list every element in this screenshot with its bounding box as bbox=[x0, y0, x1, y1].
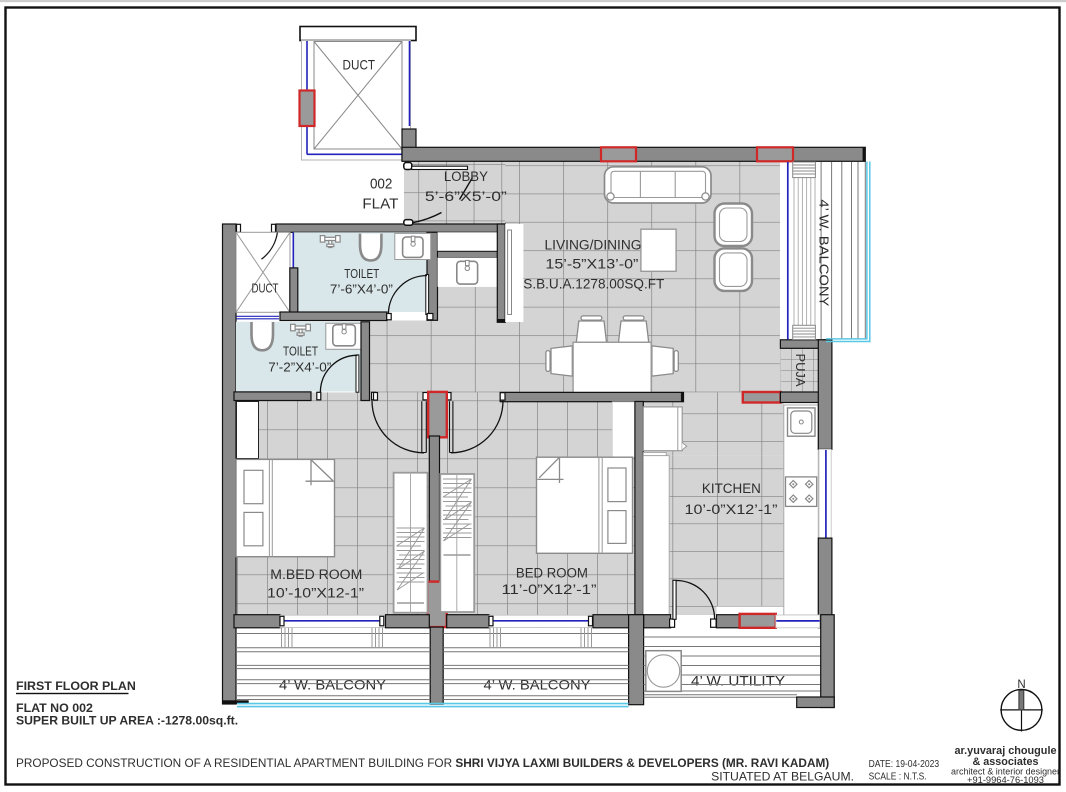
svg-text:7’-2”X4’-0”: 7’-2”X4’-0” bbox=[268, 360, 331, 375]
svg-text:FIRST FLOOR PLAN: FIRST FLOOR PLAN bbox=[16, 679, 136, 693]
svg-text:FLAT: FLAT bbox=[362, 196, 398, 213]
svg-text:SUPER BUILT UP AREA :-1278.00s: SUPER BUILT UP AREA :-1278.00sq.ft. bbox=[16, 714, 238, 728]
svg-text:4’ W. BALCONY: 4’ W. BALCONY bbox=[279, 677, 387, 693]
svg-text:TOILET: TOILET bbox=[344, 266, 379, 281]
svg-text:4’ W. BALCONY: 4’ W. BALCONY bbox=[484, 677, 592, 693]
svg-text:7’-6”X4’-0”: 7’-6”X4’-0” bbox=[330, 282, 393, 297]
svg-text:002: 002 bbox=[370, 176, 393, 193]
svg-text:KITCHEN: KITCHEN bbox=[702, 481, 761, 496]
svg-text:5’-6”X5’-0”: 5’-6”X5’-0” bbox=[425, 189, 507, 204]
svg-text:SCALE : N.T.S.: SCALE : N.T.S. bbox=[869, 772, 927, 783]
svg-text:TOILET: TOILET bbox=[283, 344, 318, 359]
svg-text:10’-0”X12’-1”: 10’-0”X12’-1” bbox=[685, 502, 778, 517]
svg-text:PROPOSED CONSTRUCTION OF A RE: PROPOSED CONSTRUCTION OF A RESIDENTIAL A… bbox=[16, 756, 829, 770]
svg-text:DUCT: DUCT bbox=[252, 282, 279, 296]
svg-text:S.B.U.A.1278.00SQ.FT: S.B.U.A.1278.00SQ.FT bbox=[523, 276, 664, 291]
svg-text:10’-10”X12-1”: 10’-10”X12-1” bbox=[267, 586, 364, 601]
svg-text:M.BED ROOM: M.BED ROOM bbox=[270, 567, 362, 582]
svg-text:LOBBY: LOBBY bbox=[444, 169, 488, 184]
svg-text:BED ROOM: BED ROOM bbox=[516, 565, 588, 580]
svg-text:PUJA: PUJA bbox=[793, 354, 808, 387]
svg-text:N: N bbox=[1017, 679, 1025, 691]
svg-text:LIVING/DINING: LIVING/DINING bbox=[545, 237, 642, 252]
svg-text:SITUATED AT BELGAUM.: SITUATED AT BELGAUM. bbox=[711, 770, 854, 784]
svg-text:DATE: 19-04-2023: DATE: 19-04-2023 bbox=[869, 759, 940, 770]
svg-text:4’ W. BALCONY: 4’ W. BALCONY bbox=[817, 199, 832, 306]
svg-text:4’ W. UTILITY: 4’ W. UTILITY bbox=[691, 674, 785, 689]
svg-text:15’-5”X13’-0”: 15’-5”X13’-0” bbox=[545, 256, 638, 271]
svg-text:+91-9964-76-1093: +91-9964-76-1093 bbox=[967, 775, 1044, 786]
svg-text:11’-0”X12’-1”: 11’-0”X12’-1” bbox=[502, 582, 597, 597]
svg-text:DUCT: DUCT bbox=[343, 57, 376, 73]
